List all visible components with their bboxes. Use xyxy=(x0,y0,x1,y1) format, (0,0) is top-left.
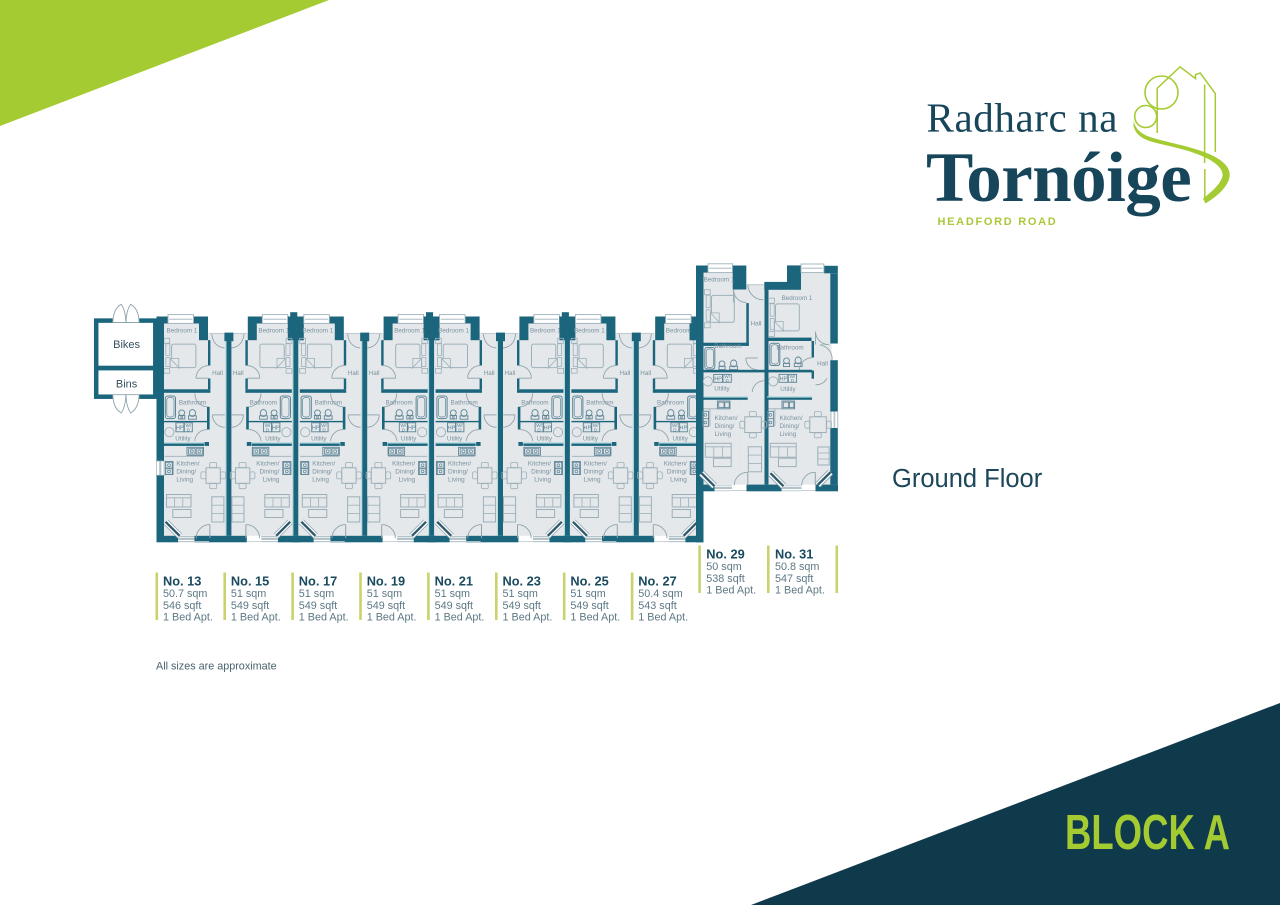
svg-text:Kitchen/: Kitchen/ xyxy=(715,415,738,422)
svg-text:50 sqm: 50 sqm xyxy=(706,561,741,573)
svg-text:Utility: Utility xyxy=(537,435,553,442)
svg-text:549 sqft: 549 sqft xyxy=(367,600,405,612)
svg-text:HP: HP xyxy=(680,425,688,431)
svg-text:Living: Living xyxy=(398,476,415,483)
svg-text:538 sqft: 538 sqft xyxy=(706,573,744,585)
svg-text:HP: HP xyxy=(780,377,788,383)
svg-text:549 sqft: 549 sqft xyxy=(570,600,608,612)
svg-text:Bathroom: Bathroom xyxy=(714,343,741,350)
svg-text:51 sqm: 51 sqm xyxy=(570,588,605,600)
svg-text:Dining/: Dining/ xyxy=(448,469,468,476)
svg-text:51 sqm: 51 sqm xyxy=(435,588,470,600)
svg-text:Utility: Utility xyxy=(780,386,796,393)
svg-text:No. 27: No. 27 xyxy=(638,574,676,589)
svg-text:51 sqm: 51 sqm xyxy=(503,588,538,600)
svg-text:Living: Living xyxy=(534,476,551,483)
svg-text:Bedroom 1: Bedroom 1 xyxy=(530,327,561,334)
svg-text:1 Bed Apt.: 1 Bed Apt. xyxy=(638,611,688,623)
svg-text:549 sqft: 549 sqft xyxy=(299,600,337,612)
svg-text:HP: HP xyxy=(584,425,592,431)
svg-text:Living: Living xyxy=(448,476,465,483)
svg-text:Ground Floor: Ground Floor xyxy=(892,465,1043,493)
svg-text:HP: HP xyxy=(714,377,722,383)
svg-text:HEADFORD ROAD: HEADFORD ROAD xyxy=(938,216,1058,228)
svg-text:Living: Living xyxy=(176,476,193,483)
svg-text:Living: Living xyxy=(312,476,329,483)
svg-text:No. 19: No. 19 xyxy=(367,574,405,589)
svg-text:Dining/: Dining/ xyxy=(715,423,735,430)
svg-text:Kitchen/: Kitchen/ xyxy=(256,461,279,468)
svg-text:Kitchen/: Kitchen/ xyxy=(448,461,471,468)
svg-text:Dining/: Dining/ xyxy=(780,423,800,430)
svg-text:Bathroom: Bathroom xyxy=(315,400,342,407)
svg-text:Bins: Bins xyxy=(116,379,138,391)
svg-text:Utility: Utility xyxy=(583,435,599,442)
svg-text:Hall: Hall xyxy=(348,370,359,377)
svg-text:Bedroom 1: Bedroom 1 xyxy=(704,276,735,283)
svg-text:All sizes are approximate: All sizes are approximate xyxy=(156,661,277,673)
svg-text:549 sqft: 549 sqft xyxy=(435,600,473,612)
svg-text:Hall: Hall xyxy=(640,370,651,377)
svg-text:No. 29: No. 29 xyxy=(706,547,744,562)
svg-text:HP: HP xyxy=(408,425,416,431)
svg-text:50.4 sqm: 50.4 sqm xyxy=(638,588,682,600)
svg-text:Dining/: Dining/ xyxy=(395,469,415,476)
svg-text:Utility: Utility xyxy=(265,435,281,442)
svg-text:Dining/: Dining/ xyxy=(667,469,687,476)
svg-text:Bathroom: Bathroom xyxy=(179,400,206,407)
svg-text:Bedroom 1: Bedroom 1 xyxy=(394,327,425,334)
svg-text:1 Bed Apt.: 1 Bed Apt. xyxy=(435,611,485,623)
svg-text:549 sqft: 549 sqft xyxy=(503,600,541,612)
svg-text:HP: HP xyxy=(312,425,320,431)
svg-text:Dining/: Dining/ xyxy=(176,469,196,476)
svg-text:51 sqm: 51 sqm xyxy=(299,588,334,600)
svg-text:Hall: Hall xyxy=(817,361,828,368)
svg-text:Bedroom 1: Bedroom 1 xyxy=(574,327,605,334)
svg-text:Hall: Hall xyxy=(504,370,515,377)
svg-text:1 Bed Apt.: 1 Bed Apt. xyxy=(231,611,281,623)
svg-text:1 Bed Apt.: 1 Bed Apt. xyxy=(163,611,213,623)
svg-text:Dining/: Dining/ xyxy=(259,469,279,476)
svg-text:1 Bed Apt.: 1 Bed Apt. xyxy=(775,584,825,596)
svg-text:Tornóige: Tornóige xyxy=(926,139,1191,217)
svg-text:1 Bed Apt.: 1 Bed Apt. xyxy=(706,584,756,596)
svg-text:546 sqft: 546 sqft xyxy=(163,600,201,612)
svg-text:Kitchen/: Kitchen/ xyxy=(392,461,415,468)
svg-text:1 Bed Apt.: 1 Bed Apt. xyxy=(570,611,620,623)
svg-text:Kitchen/: Kitchen/ xyxy=(664,461,687,468)
svg-text:1 Bed Apt.: 1 Bed Apt. xyxy=(299,611,349,623)
svg-text:Utility: Utility xyxy=(401,435,417,442)
svg-text:Hall: Hall xyxy=(619,370,630,377)
svg-text:Bathroom: Bathroom xyxy=(776,344,803,351)
svg-text:Bathroom: Bathroom xyxy=(250,400,277,407)
svg-text:Utility: Utility xyxy=(175,435,191,442)
svg-text:549 sqft: 549 sqft xyxy=(231,600,269,612)
svg-text:Utility: Utility xyxy=(714,385,730,392)
svg-text:Bathroom: Bathroom xyxy=(521,400,548,407)
svg-text:50.8 sqm: 50.8 sqm xyxy=(775,561,819,573)
svg-text:Living: Living xyxy=(780,431,797,438)
svg-text:Kitchen/: Kitchen/ xyxy=(312,461,335,468)
svg-text:543 sqft: 543 sqft xyxy=(638,600,676,612)
svg-text:Bathroom: Bathroom xyxy=(586,400,613,407)
svg-text:BLOCK A: BLOCK A xyxy=(1065,806,1230,860)
svg-text:Kitchen/: Kitchen/ xyxy=(780,415,803,422)
svg-text:Dining/: Dining/ xyxy=(312,469,332,476)
svg-text:Hall: Hall xyxy=(233,370,244,377)
svg-text:HP: HP xyxy=(176,425,184,431)
svg-text:Bedroom 1: Bedroom 1 xyxy=(782,295,813,302)
svg-text:Bikes: Bikes xyxy=(113,339,140,351)
svg-text:No. 25: No. 25 xyxy=(570,574,608,589)
svg-text:Bedroom 1: Bedroom 1 xyxy=(258,327,289,334)
svg-text:No. 31: No. 31 xyxy=(775,547,813,562)
svg-text:Bedroom 1: Bedroom 1 xyxy=(302,327,333,334)
svg-text:51 sqm: 51 sqm xyxy=(367,588,402,600)
svg-text:Bedroom 1: Bedroom 1 xyxy=(438,327,469,334)
svg-text:Bedroom 1: Bedroom 1 xyxy=(167,327,198,334)
svg-text:Living: Living xyxy=(670,476,687,483)
svg-text:Utility: Utility xyxy=(311,435,327,442)
svg-text:Hall: Hall xyxy=(212,370,223,377)
svg-text:Living: Living xyxy=(584,476,601,483)
svg-text:No. 23: No. 23 xyxy=(503,574,541,589)
svg-text:547 sqft: 547 sqft xyxy=(775,573,813,585)
svg-text:Bathroom: Bathroom xyxy=(385,400,412,407)
svg-text:No. 17: No. 17 xyxy=(299,574,337,589)
svg-text:1 Bed Apt.: 1 Bed Apt. xyxy=(367,611,417,623)
svg-text:Hall: Hall xyxy=(484,370,495,377)
svg-text:Bathroom: Bathroom xyxy=(657,400,684,407)
svg-text:HP: HP xyxy=(448,425,456,431)
svg-text:Dining/: Dining/ xyxy=(584,469,604,476)
svg-text:Kitchen/: Kitchen/ xyxy=(584,461,607,468)
svg-text:Living: Living xyxy=(263,476,280,483)
svg-text:No. 15: No. 15 xyxy=(231,574,269,589)
svg-text:No. 21: No. 21 xyxy=(435,574,473,589)
svg-text:50.7 sqm: 50.7 sqm xyxy=(163,588,207,600)
svg-text:Dining/: Dining/ xyxy=(531,469,551,476)
svg-text:Radharc na: Radharc na xyxy=(927,95,1119,141)
svg-text:Living: Living xyxy=(715,431,732,438)
svg-text:No. 13: No. 13 xyxy=(163,574,201,589)
svg-text:HP: HP xyxy=(272,425,280,431)
svg-text:Hall: Hall xyxy=(751,321,762,328)
svg-text:Utility: Utility xyxy=(447,435,463,442)
svg-text:Hall: Hall xyxy=(369,370,380,377)
svg-text:Kitchen/: Kitchen/ xyxy=(176,461,199,468)
svg-text:Kitchen/: Kitchen/ xyxy=(528,461,551,468)
svg-text:1 Bed Apt.: 1 Bed Apt. xyxy=(503,611,553,623)
svg-text:Utility: Utility xyxy=(672,435,688,442)
svg-text:Bathroom: Bathroom xyxy=(450,400,477,407)
svg-text:51 sqm: 51 sqm xyxy=(231,588,266,600)
svg-text:HP: HP xyxy=(544,425,552,431)
